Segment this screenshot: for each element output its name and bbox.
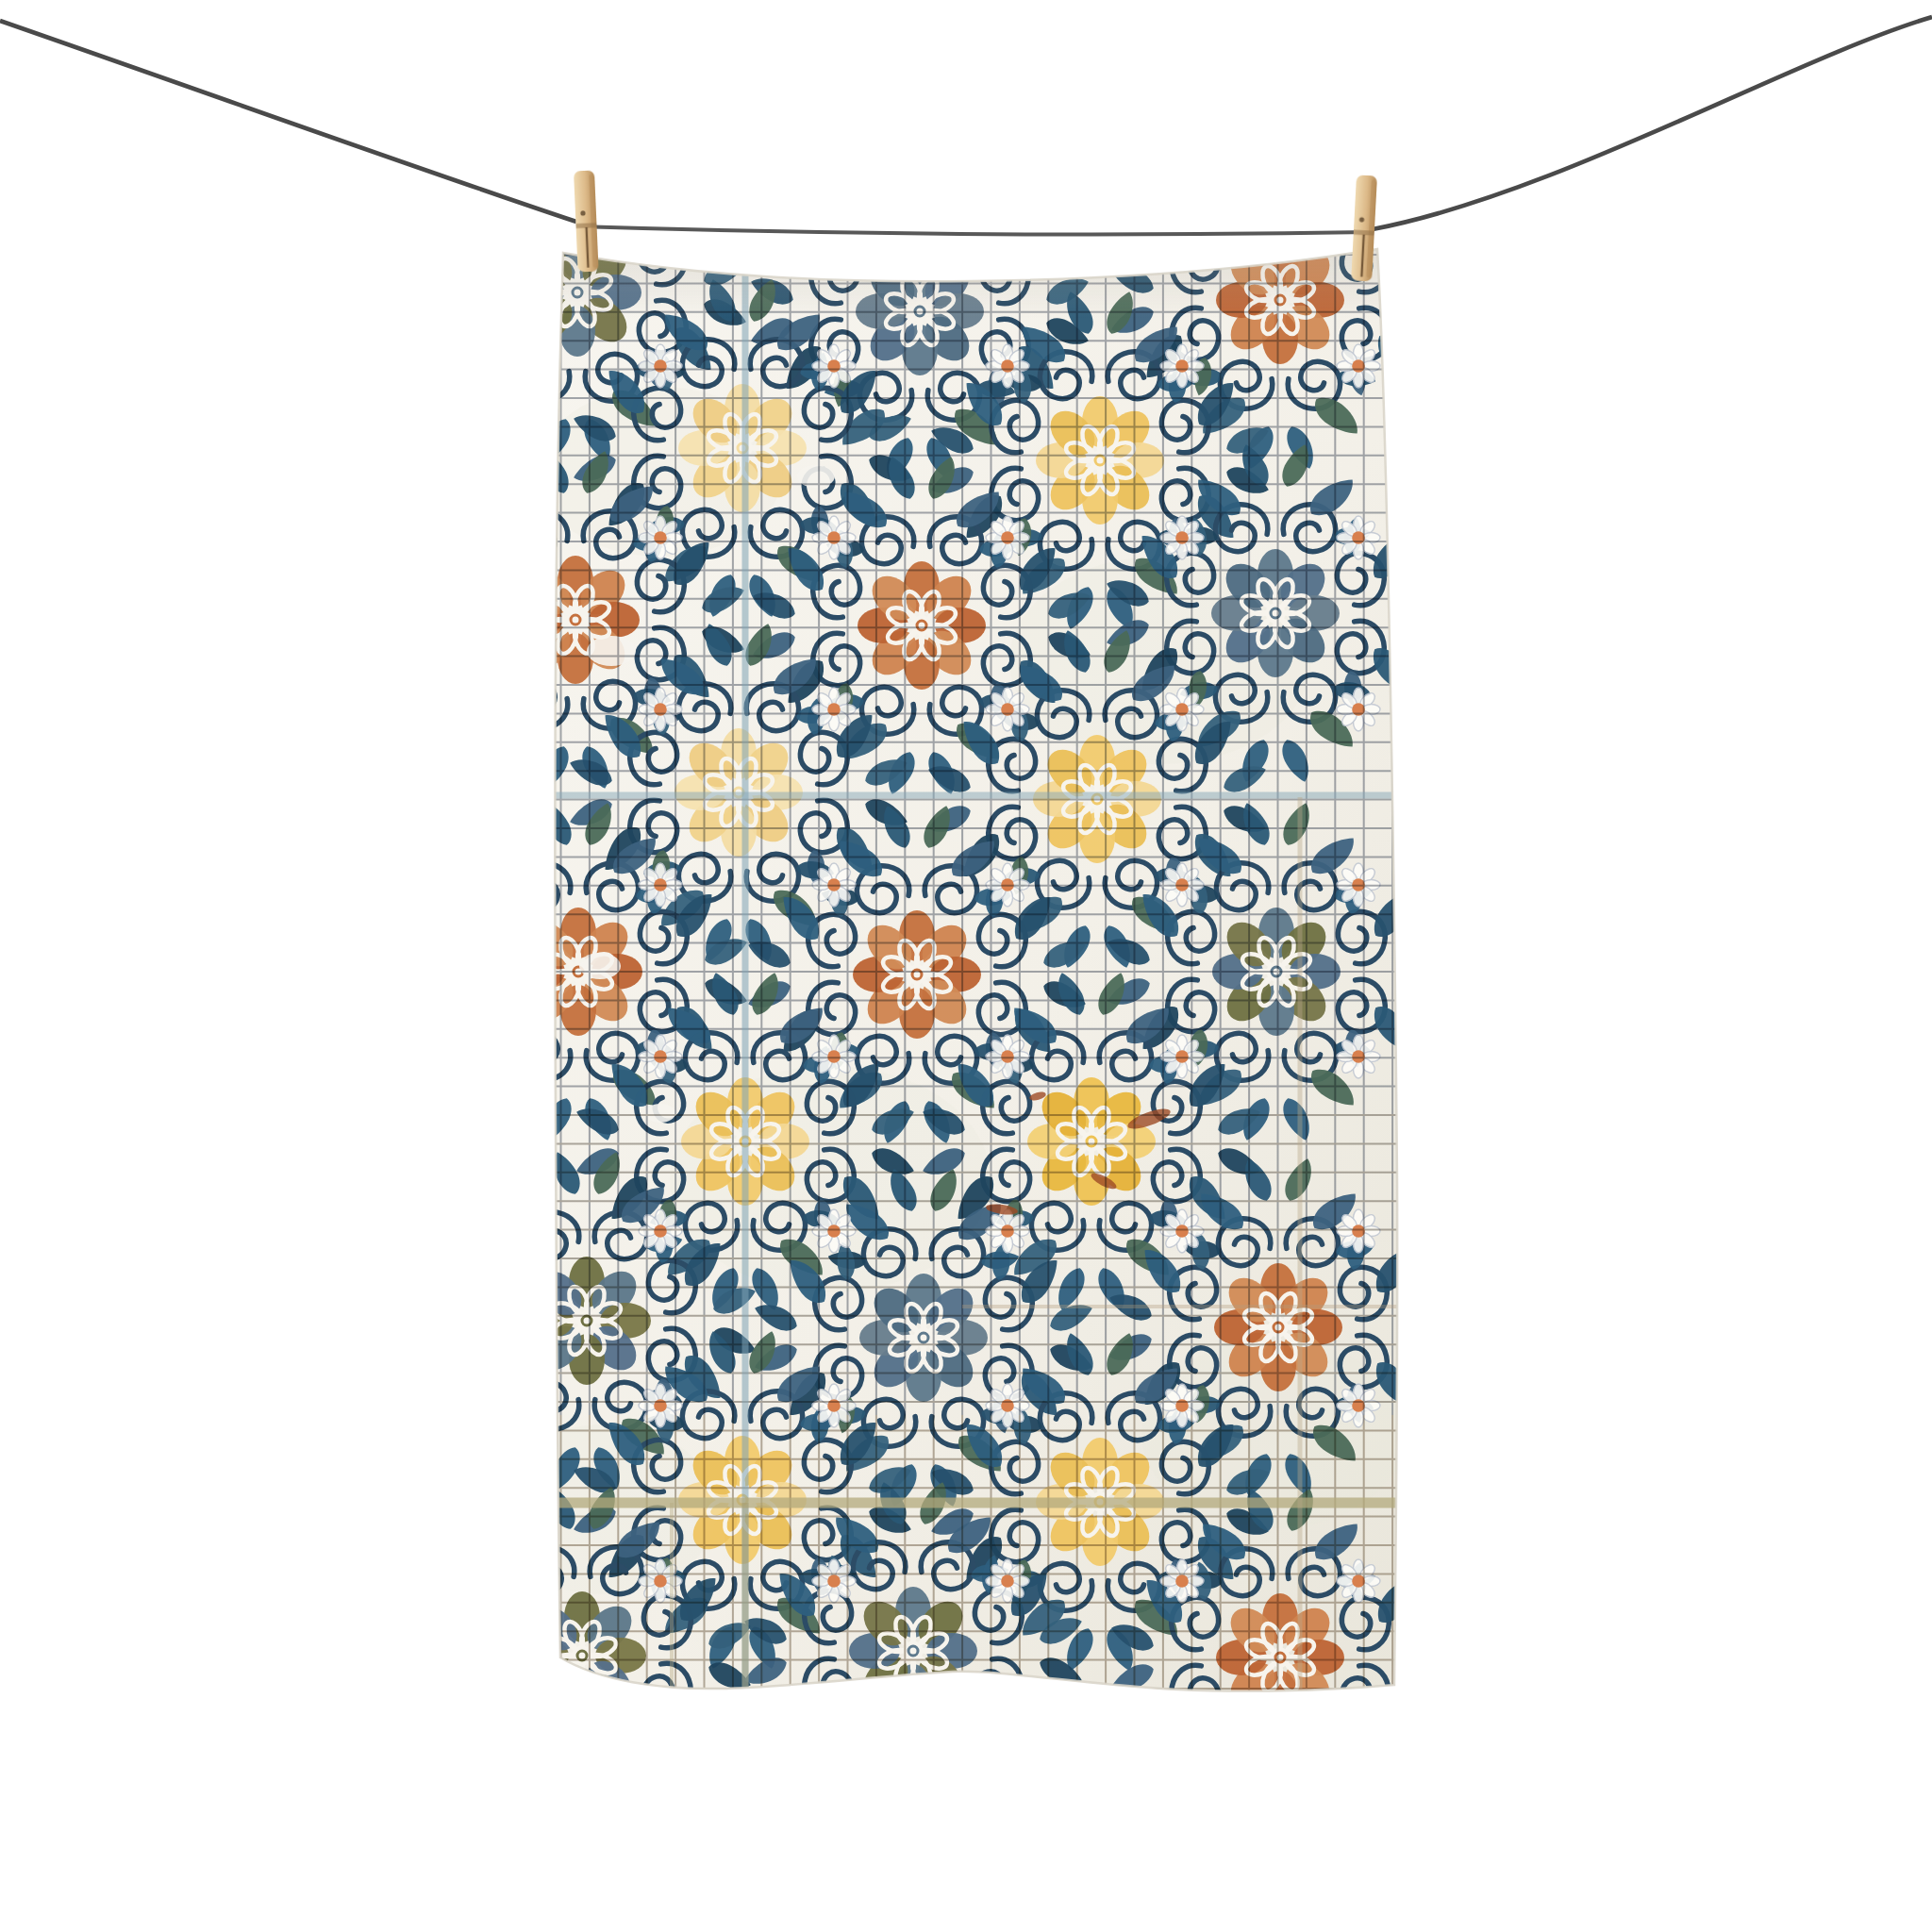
daisy-motif [1337,1384,1380,1427]
tile-flower-terracotta [1216,1593,1344,1722]
tile-flower-olive-slate [523,1257,651,1385]
daisy-motif [1160,1384,1204,1427]
mockup-canvas [0,0,1932,1932]
daisy-motif [1160,516,1204,559]
wire-middle-segment [577,226,1370,234]
tile-flower-gold [1027,1077,1156,1206]
daisy-motif [1160,688,1204,731]
tile-flower-olive-slate [518,1591,646,1720]
clothesline-wire [0,17,1932,234]
daisy-motif [1160,1559,1204,1603]
tile-flower-slate [859,1274,988,1402]
daisy-motif [986,344,1029,388]
tea-towel [404,121,1451,1828]
daisy-motif [986,1559,1029,1603]
worn-patch [645,1104,675,1123]
daisy-motif [1337,344,1380,388]
clothespin-left [574,171,599,273]
worn-patch [587,636,636,666]
daisy-motif [986,1035,1029,1078]
daisy-motif [1160,344,1204,388]
tile-flower-yellow-mid [1036,396,1164,525]
daisy-motif [1160,1035,1204,1078]
daisy-motif [986,516,1029,559]
product-mockup [0,0,1932,1932]
daisy-motif [1337,1559,1380,1603]
daisy-motif [986,688,1029,731]
worn-patch [579,953,621,979]
daisy-motif [1160,1209,1204,1253]
daisy-motif [986,1209,1029,1253]
daisy-motif [1337,688,1380,731]
daisy-motif [1337,516,1380,559]
tile-flower-slate [1211,549,1340,677]
daisy-motif [1337,1209,1380,1253]
wire-right-segment [1373,17,1932,229]
wire-left-segment [0,21,576,222]
daisy-motif [1337,1035,1380,1078]
tile-flower-slate-olive [849,1587,977,1715]
daisy-motif [986,1384,1029,1427]
